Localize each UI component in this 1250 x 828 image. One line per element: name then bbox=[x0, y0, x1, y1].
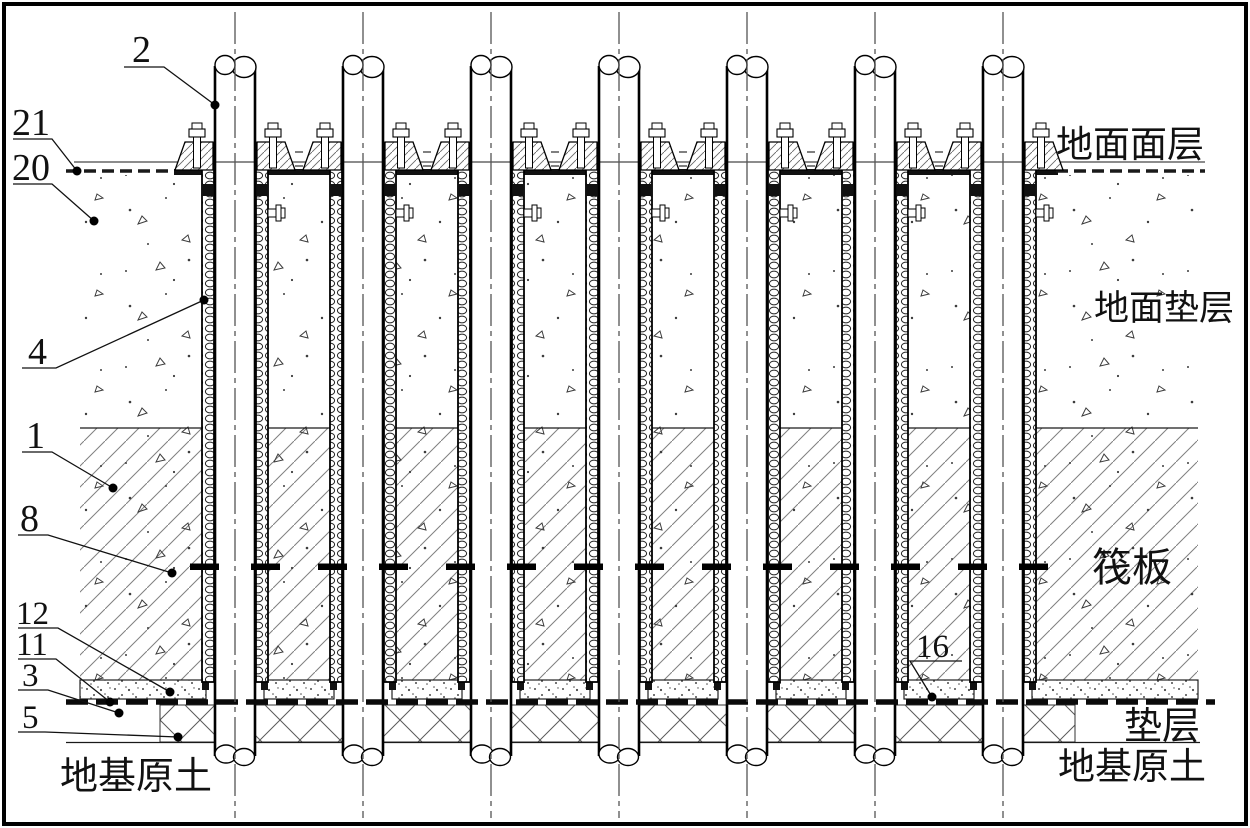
callout-4-label: 4 bbox=[28, 331, 47, 373]
callout-20-label: 20 bbox=[12, 147, 50, 189]
callout-1-label: 1 bbox=[26, 415, 45, 457]
callout-3-label: 3 bbox=[22, 658, 39, 694]
raft-label: 筏板 bbox=[1092, 545, 1172, 590]
cushion-label: 垫层 bbox=[1124, 706, 1200, 748]
ground-cushion-label: 地面垫层 bbox=[1094, 289, 1234, 328]
callout-8-label: 8 bbox=[20, 498, 39, 540]
callout-21-label: 21 bbox=[12, 102, 50, 144]
callout-16-label: 16 bbox=[916, 629, 949, 665]
drawing-sheet: 2 21 20 4 1 8 12 11 3 5 16 地面面层 地面垫层 筏板 … bbox=[0, 0, 1250, 828]
soil-left-label: 地基原土 bbox=[60, 756, 212, 798]
callout-5-label: 5 bbox=[22, 700, 39, 736]
ground-surface-label: 地面面层 bbox=[1056, 125, 1204, 166]
soil-right-label: 地基原土 bbox=[1058, 747, 1206, 788]
technical-drawing: 2 21 20 4 1 8 12 11 3 5 16 地面面层 地面垫层 筏板 … bbox=[0, 0, 1250, 828]
callout-2-label: 2 bbox=[132, 29, 151, 71]
